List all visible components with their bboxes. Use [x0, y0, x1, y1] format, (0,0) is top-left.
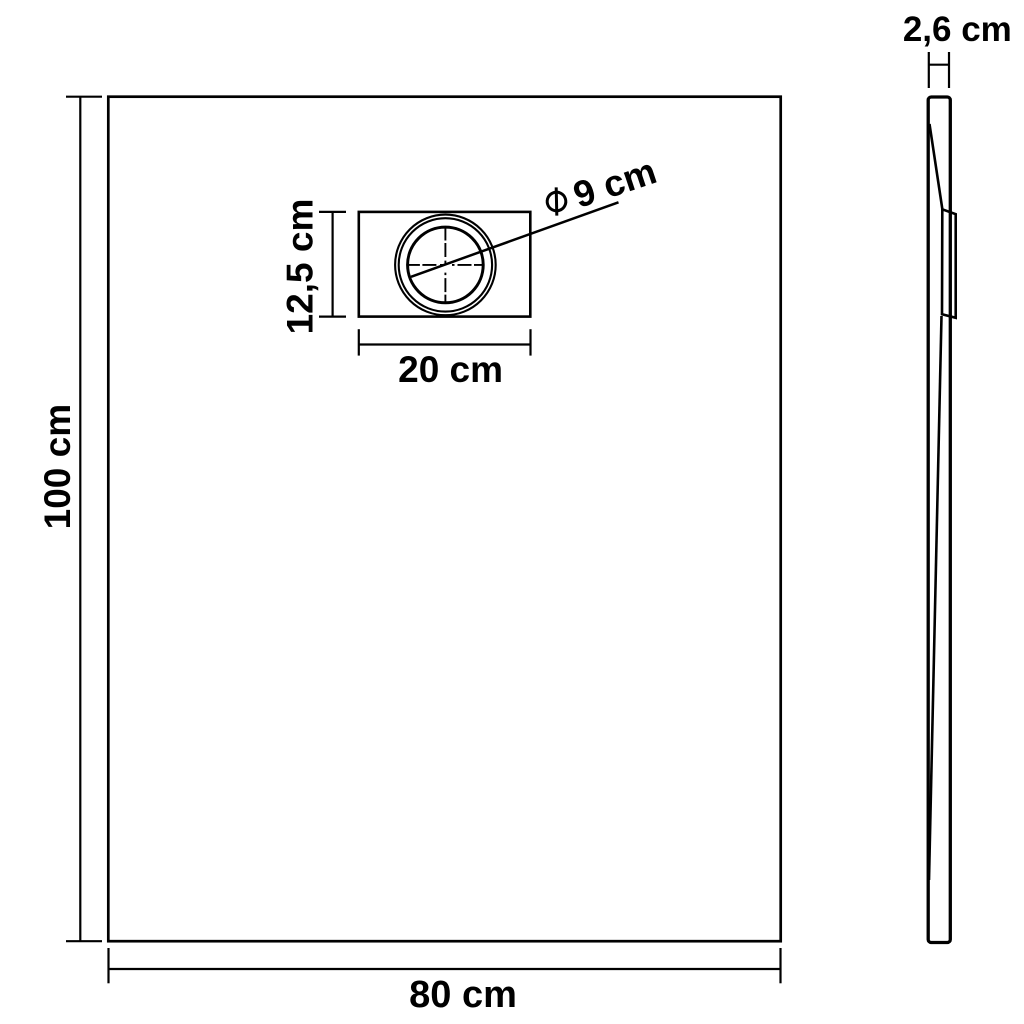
svg-text:80 cm: 80 cm: [409, 974, 517, 1016]
svg-text:20 cm: 20 cm: [398, 349, 503, 390]
svg-text:100 cm: 100 cm: [37, 404, 78, 529]
svg-text:12,5 cm: 12,5 cm: [280, 199, 321, 335]
svg-text:2,6 cm: 2,6 cm: [903, 10, 1012, 49]
